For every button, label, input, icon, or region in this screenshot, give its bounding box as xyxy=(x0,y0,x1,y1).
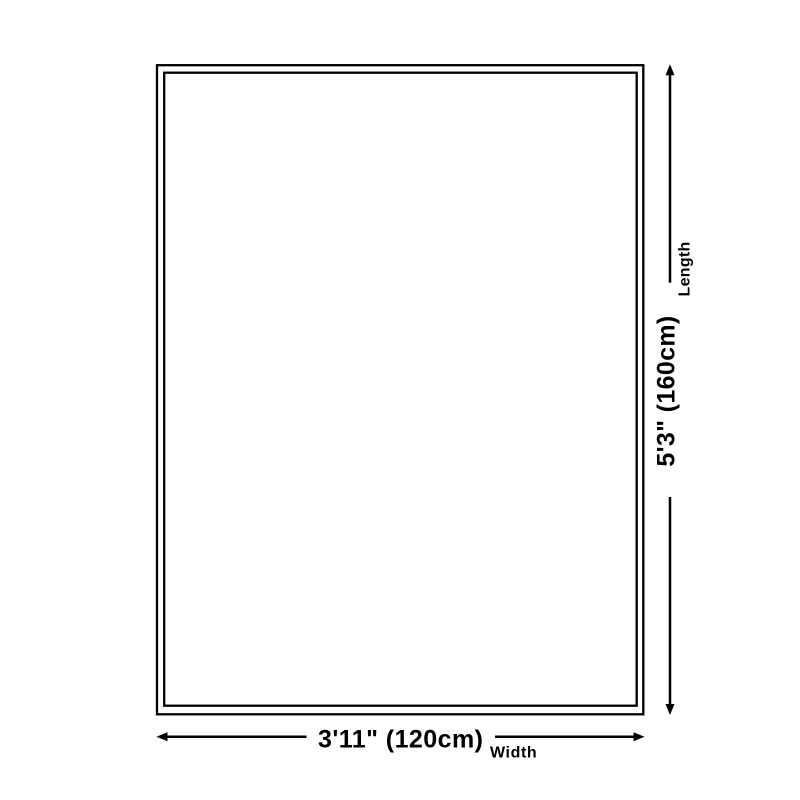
svg-text:Width: Width xyxy=(490,744,537,761)
svg-text:5'3" (160cm): 5'3" (160cm) xyxy=(652,315,680,466)
svg-text:3'11" (120cm): 3'11" (120cm) xyxy=(318,726,483,754)
svg-text:Length: Length xyxy=(677,241,694,296)
